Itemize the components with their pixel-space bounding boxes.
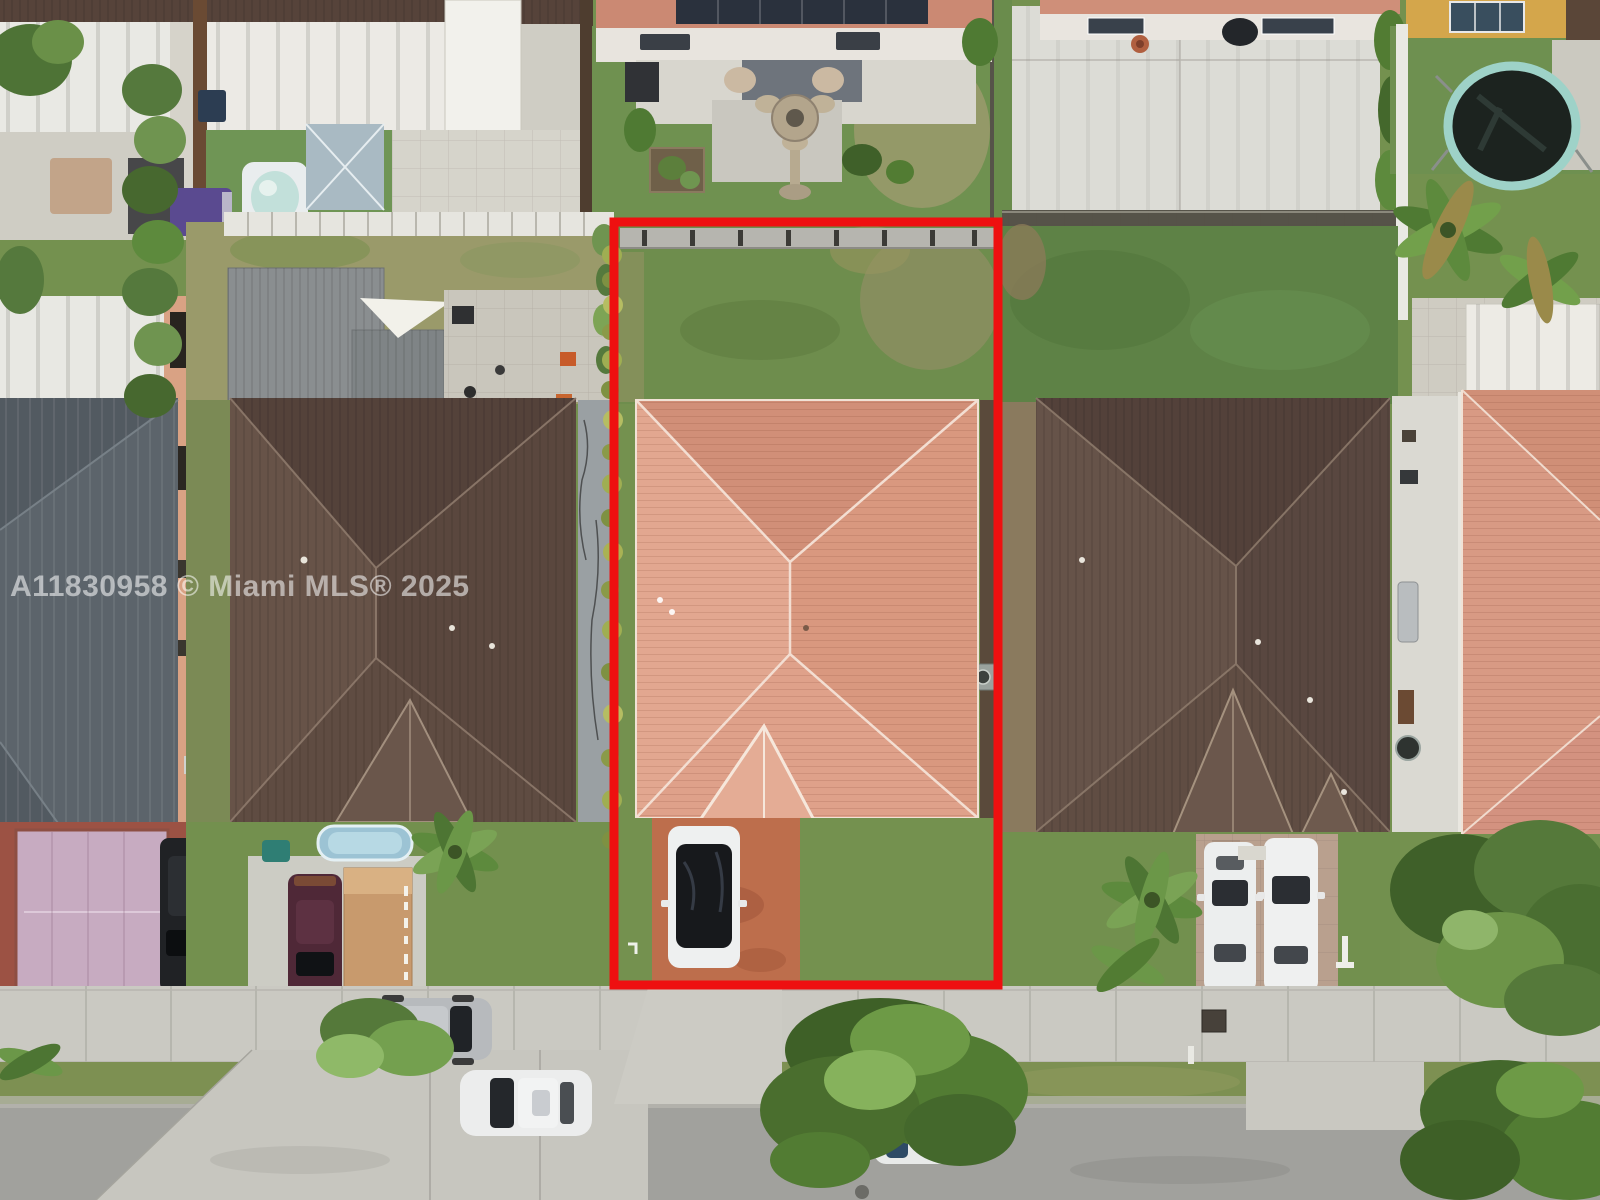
left-house-roof: [230, 398, 576, 822]
pot-center: [1136, 40, 1144, 48]
maroon-suv: [288, 874, 342, 998]
grass-shade-2: [1190, 290, 1370, 370]
top-center-neighbor: [580, 0, 1002, 224]
window-2: [1262, 18, 1334, 34]
top-left-neighbor: [0, 0, 585, 240]
roof-vent-1: [657, 597, 663, 603]
storm-drain: [1202, 1010, 1226, 1032]
dark-bag: [1222, 18, 1258, 46]
shrub-2: [886, 160, 914, 184]
gray-gazebo: [306, 124, 384, 210]
aerial-scene: [0, 0, 1600, 1200]
patio-chair-1: [724, 67, 756, 93]
corner-roof-bit: [1566, 0, 1600, 40]
top-lawn-shrub: [962, 18, 998, 66]
window-1: [640, 34, 690, 50]
patio-item-2: [464, 386, 476, 398]
driveway-stain-2: [734, 948, 786, 972]
white-pergola: [224, 212, 614, 236]
white-car-right: [1257, 838, 1325, 992]
subject-lot: [616, 222, 1034, 988]
round-ac: [1396, 736, 1420, 760]
asphalt-patch-1: [210, 1146, 390, 1174]
kiddie-pool: [318, 826, 412, 860]
vent-2: [1255, 639, 1261, 645]
mirror-right: [738, 900, 747, 907]
silver-grill: [1398, 582, 1418, 642]
entry-step: [1238, 846, 1266, 860]
right-side-walkway: [1392, 396, 1460, 832]
garden-planter: [650, 148, 704, 192]
green-patch: [680, 300, 840, 360]
roof-vent-2: [669, 609, 675, 615]
mirror-left: [661, 900, 670, 907]
dirt-spot: [998, 224, 1046, 300]
fence-left: [580, 0, 593, 224]
shrub-3: [624, 108, 656, 152]
far-right-roof: [1462, 390, 1600, 834]
roof-tower: [445, 0, 521, 134]
misc-item: [1402, 430, 1416, 442]
swale-dry: [1000, 1066, 1240, 1098]
ribbed-texture: [1466, 304, 1600, 404]
left-gap-grass: [186, 400, 230, 824]
roof-vent-2: [449, 625, 455, 631]
right-apron: [1246, 1062, 1424, 1130]
side-path-strip: [1000, 402, 1036, 832]
driveway-car: [661, 826, 747, 968]
subject-house-roof: [636, 400, 978, 820]
far-right-home: [1458, 390, 1600, 834]
skylight: [1450, 2, 1524, 32]
white-post: [1342, 936, 1348, 962]
vent-1: [1079, 557, 1085, 563]
roof-vent-1: [301, 557, 308, 564]
patio-item-1: [495, 365, 505, 375]
tan-canopy: [50, 158, 112, 214]
metal-roof: [0, 398, 178, 826]
roof-vent-3: [803, 625, 809, 631]
navy-box: [198, 90, 226, 122]
shrub-1: [842, 144, 882, 176]
left-neighbor-lot: [186, 212, 614, 1014]
patio-chair-2: [812, 67, 844, 93]
top-right-neighbor: [994, 0, 1406, 242]
window-1: [1088, 18, 1144, 34]
roof-vent-3: [489, 643, 495, 649]
orange-cooler: [560, 352, 576, 366]
teal-bin: [262, 840, 290, 862]
grass-tinge-2: [460, 242, 580, 278]
white-board: [1336, 962, 1354, 968]
roof-b-streaks: [205, 22, 453, 134]
dark-box: [1400, 470, 1418, 484]
vent-3: [1307, 697, 1313, 703]
side-worn-path: [618, 252, 644, 402]
asphalt-patch-2: [1070, 1156, 1290, 1184]
curb-marker: [1188, 1046, 1194, 1064]
bench: [1398, 690, 1414, 724]
aerial-photo: A11830958 © Miami MLS® 2025: [0, 0, 1600, 1200]
rear-fence: [620, 228, 994, 248]
roof-eave: [1040, 0, 1400, 14]
white-sedan: [460, 1070, 592, 1136]
grill: [625, 62, 659, 102]
white-car-left: [1197, 842, 1263, 992]
right-house-roof: [1036, 398, 1390, 846]
patio-grill: [452, 306, 474, 324]
pink-carport: [16, 830, 168, 994]
window-2: [836, 32, 880, 50]
vent-4: [1341, 789, 1347, 795]
street-dot: [855, 1185, 869, 1199]
truck-lettering: [404, 886, 408, 896]
